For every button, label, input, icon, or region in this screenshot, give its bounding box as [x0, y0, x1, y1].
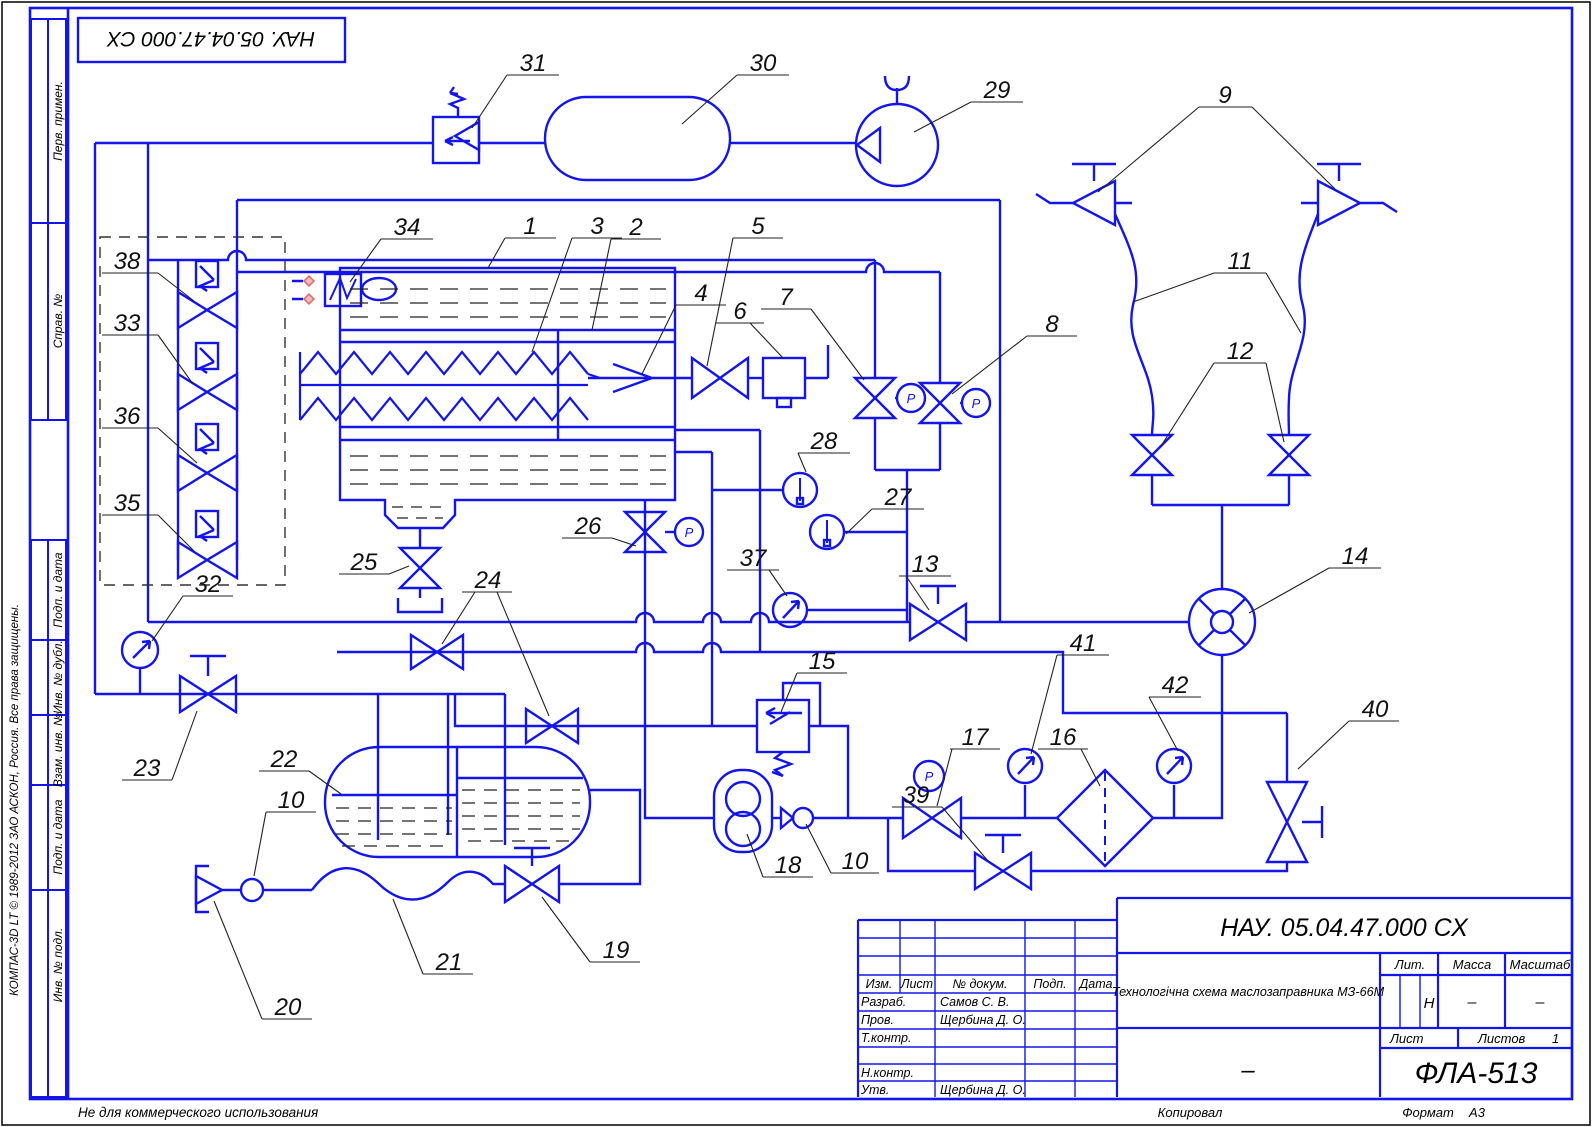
sidebar-labels: Перв. примен. Справ. № Подп. и дата Инв.…: [9, 81, 65, 1002]
callout-5: 5: [751, 213, 765, 240]
sidebar-inv-dubl: Инв. № дубл.: [51, 640, 65, 714]
col-ndoc: № докум.: [952, 977, 1007, 991]
callout-9: 9: [1218, 82, 1231, 109]
callout-28: 28: [810, 428, 838, 455]
callout-39: 39: [903, 782, 930, 809]
kopiroval-label: Копировал: [1158, 1105, 1223, 1120]
callout-37: 37: [740, 545, 768, 572]
hose-11-left: [1115, 214, 1153, 435]
name-utv: Щербина Д. О.: [940, 1083, 1026, 1097]
callout-1: 1: [523, 213, 536, 240]
callout-15: 15: [809, 648, 836, 675]
sidebar-podp-data-2: Подп. и дата: [51, 799, 65, 874]
hose-11-right: [1289, 214, 1318, 435]
electrical-markers: [304, 276, 314, 304]
col-list: Лист: [900, 977, 933, 991]
callout-16: 16: [1050, 724, 1077, 751]
callout-29: 29: [983, 77, 1011, 104]
distributor-14: [1189, 589, 1255, 655]
callout-2: 2: [628, 214, 642, 241]
bottom-dash-cell: –: [1240, 1057, 1255, 1084]
gear-pump-18: [714, 770, 772, 852]
callout-21: 21: [435, 949, 463, 976]
callout-41: 41: [1070, 630, 1097, 657]
unit-6: [763, 345, 828, 407]
vacuum-pump-29: [856, 76, 938, 186]
org-code: ФЛА-513: [1415, 1057, 1538, 1090]
name-prov: Щербина Д. О.: [940, 1013, 1026, 1027]
callout-18: 18: [775, 852, 802, 879]
p-label-valve26: P: [685, 525, 694, 540]
doc-code: НАУ. 05.04.47.000 СХ: [1220, 914, 1469, 942]
col-data: Дата: [1078, 977, 1113, 991]
valve-5: [692, 358, 748, 398]
callout-4: 4: [694, 280, 707, 307]
cad-drawing-canvas: Перв. примен. Справ. № Подп. и дата Инв.…: [0, 0, 1592, 1127]
valve-12-right: [1269, 435, 1309, 475]
list-label: Лист: [1389, 1031, 1424, 1046]
callout-7: 7: [779, 284, 794, 311]
callout-40: 40: [1362, 696, 1389, 723]
masshtab-label: Масштаб: [1510, 957, 1571, 972]
valve-12-left: [1132, 435, 1172, 475]
dispensing-gun-right: [1301, 164, 1397, 225]
relief-valve-15: [757, 683, 820, 776]
callout-42: 42: [1162, 672, 1189, 699]
thermometer-28: [712, 473, 817, 507]
check-valve-10-right: [772, 808, 903, 828]
receiver-30: [545, 97, 730, 180]
drawing-title: Технологічна схема маслозаправника МЗ-66…: [1112, 985, 1385, 999]
callout-22: 22: [270, 746, 298, 773]
callout-8: 8: [1045, 311, 1059, 338]
col-izm: Изм.: [866, 977, 893, 991]
callout-27: 27: [884, 484, 913, 511]
callout-26: 26: [574, 513, 602, 540]
callout-3: 3: [590, 213, 604, 240]
filter-16: [1057, 770, 1153, 866]
gauge-32: [122, 632, 158, 694]
callout-38: 38: [114, 248, 141, 275]
callout-32: 32: [195, 571, 222, 598]
callout-25: 25: [350, 549, 378, 576]
callout-10-right: 10: [842, 848, 869, 875]
callout-14: 14: [1342, 543, 1369, 570]
callout-33: 33: [114, 310, 141, 337]
valve-39: [975, 835, 1031, 889]
tank-22: [325, 747, 590, 857]
format-label: Формат: [1402, 1105, 1454, 1120]
callout-30: 30: [750, 50, 777, 77]
thermometer-27: [810, 515, 907, 549]
format-value: А3: [1468, 1105, 1486, 1120]
callout-35: 35: [114, 490, 141, 517]
callout-11: 11: [1228, 248, 1253, 275]
valve-23: [180, 656, 236, 712]
callout-6: 6: [733, 298, 747, 325]
lit-value: Н: [1424, 995, 1435, 1012]
sidebar-vzam-inv: Взам. инв. №: [51, 713, 65, 787]
compas-copyright: КОМПАС-3D LT © 1989-2012 ЗАО АСКОН, Росс…: [9, 604, 21, 996]
hose-21: [312, 868, 505, 899]
p-label-valve7: P: [907, 391, 916, 406]
callout-19: 19: [603, 937, 630, 964]
sidebar-sprav-no: Справ. №: [51, 294, 65, 349]
row-prov: Пров.: [861, 1013, 894, 1027]
listov-value: 1: [1552, 1031, 1559, 1046]
pressure-regulator-31: [433, 87, 479, 163]
massa-label: Масса: [1453, 957, 1491, 972]
masshtab-value: –: [1535, 994, 1545, 1011]
callout-20: 20: [274, 994, 302, 1021]
solenoid-valve-36: [178, 424, 237, 491]
callout-numbers: 1 2 3 4 5 6 7 8 9 10 10 11 12 13 14 15 1…: [114, 50, 1389, 1021]
row-utv: Утв.: [860, 1083, 889, 1097]
top-stamp-code: НАУ. 05.04.47.000 СХ: [106, 27, 315, 50]
valve-40: [1267, 782, 1322, 862]
valve-25: [398, 528, 442, 612]
p-label-valve8: P: [972, 396, 981, 411]
title-block-text: НАУ. 05.04.47.000 СХ Технологічна схема …: [860, 914, 1571, 1120]
callout-17: 17: [962, 724, 990, 751]
drawing-sheet: Перв. примен. Справ. № Подп. и дата Инв.…: [0, 0, 1592, 1127]
lit-label: Лит.: [1394, 957, 1425, 972]
callout-34: 34: [394, 214, 421, 241]
sidebar-podp-data-1: Подп. и дата: [51, 552, 65, 627]
connector-10-left: [241, 879, 263, 901]
callout-23: 23: [133, 755, 161, 782]
not-for-commercial-note: Не для коммерческого использования: [78, 1105, 318, 1120]
callout-24: 24: [474, 567, 502, 594]
row-nkontr: Н.контр.: [861, 1066, 914, 1080]
listov-label: Листов: [1477, 1031, 1526, 1046]
sidebar-perv-primen: Перв. примен.: [51, 81, 65, 161]
strainer-20: [196, 866, 241, 912]
solenoid-valve-33: [178, 343, 237, 410]
row-razrab: Разраб.: [861, 995, 906, 1009]
callout-12: 12: [1227, 338, 1254, 365]
top-stamp: НАУ. 05.04.47.000 СХ: [78, 18, 345, 62]
callout-13: 13: [912, 551, 939, 578]
callout-10-left: 10: [278, 787, 305, 814]
gauge-42: [1157, 749, 1191, 783]
solenoid-valve-38: [178, 261, 237, 328]
col-podp: Подп.: [1033, 977, 1066, 991]
dispensing-gun-left: [1036, 164, 1132, 225]
callout-31: 31: [520, 50, 547, 77]
gauge-41: [1008, 749, 1042, 783]
sidebar-inv-podl: Инв. № подл.: [51, 928, 65, 1002]
callout-36: 36: [114, 403, 141, 430]
massa-value: –: [1467, 994, 1477, 1011]
heating-coil-3: [300, 352, 600, 420]
row-tkontr: Т.контр.: [861, 1031, 911, 1045]
name-razrab: Самов С. В.: [940, 995, 1009, 1009]
